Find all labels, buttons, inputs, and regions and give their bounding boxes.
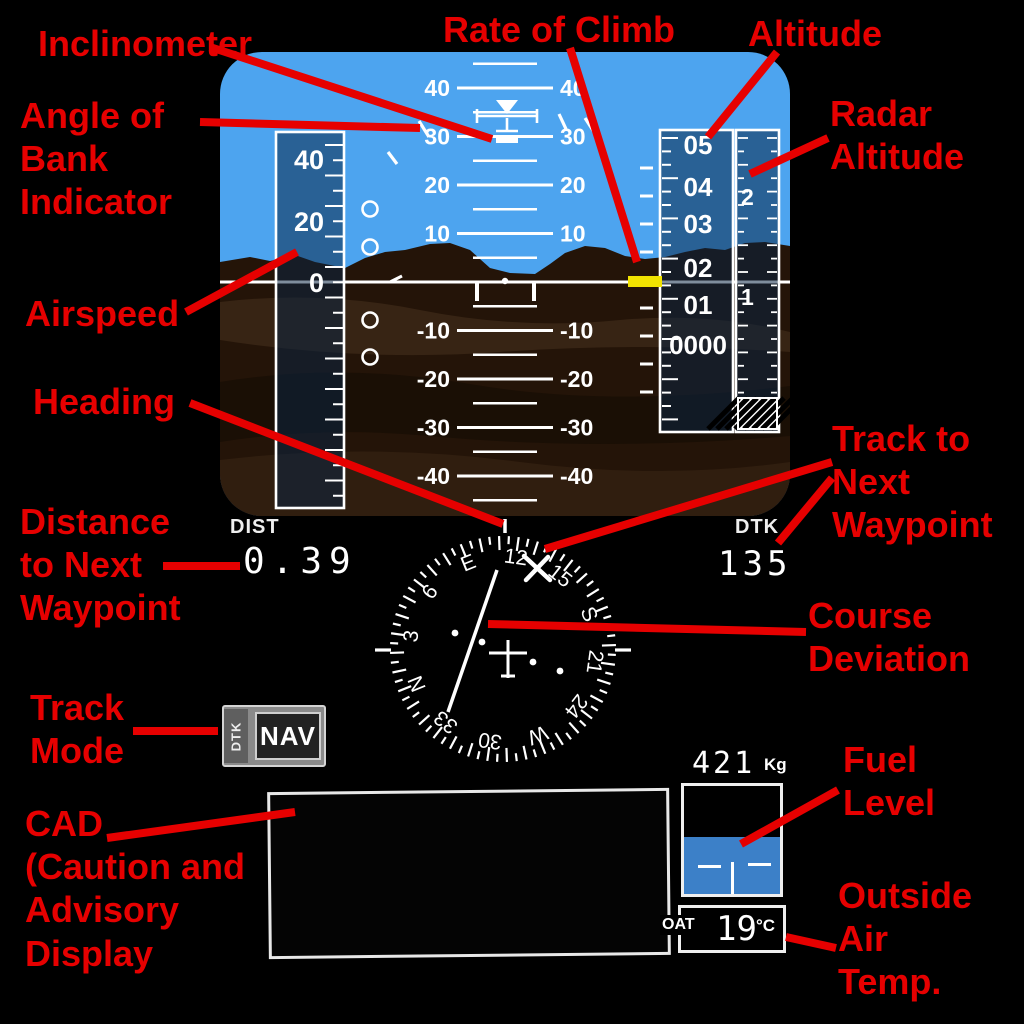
oat-unit: °C <box>756 916 775 936</box>
rose-tick <box>555 733 562 745</box>
rose-tick <box>435 559 440 565</box>
rose-tick <box>480 538 483 552</box>
waypoint-bearing-pointer-icon <box>524 556 550 580</box>
label-rate-of-climb: Rate of Climb <box>443 8 675 51</box>
rose-tick <box>600 690 607 693</box>
rose-tick <box>603 616 611 618</box>
pitch-label-left: -20 <box>417 366 450 392</box>
pitch-label-right: -40 <box>560 463 593 489</box>
label-track-to-next-waypoint: Track to Next Waypoint <box>832 417 993 547</box>
rose-tick <box>551 743 555 750</box>
rose-tick <box>605 673 613 675</box>
rose-label: 24 <box>559 690 592 723</box>
pitch-label-left: -40 <box>417 463 450 489</box>
label-heading: Heading <box>33 380 175 423</box>
rose-tick <box>441 737 445 744</box>
pitch-label-right: -20 <box>560 366 593 392</box>
hsi-compass: N36E1215S2124W3033 <box>360 505 650 795</box>
pitch-label-right: -30 <box>560 415 593 441</box>
airspeed-value: 40 <box>294 145 324 175</box>
rate-of-climb-pointer <box>628 276 662 287</box>
airspeed-tape: 40200 <box>276 132 344 508</box>
attitude-display: 4040303020201010-10-10-20-20-30-30-40-40 <box>220 52 790 516</box>
rose-tick <box>452 548 456 555</box>
dtk-value: 135 <box>718 544 791 584</box>
oat-label: OAT <box>660 915 697 935</box>
radalt-value: 2 <box>741 184 754 210</box>
caution-advisory-display <box>267 788 671 959</box>
hsi-aircraft-symbol <box>489 640 527 678</box>
pitch-label-left: -30 <box>417 415 450 441</box>
oat-value: 19 <box>716 909 757 949</box>
rose-tick <box>534 749 536 757</box>
rose-tick <box>443 553 450 565</box>
rose-tick <box>468 743 472 756</box>
rose-tick <box>534 542 538 555</box>
rose-tick <box>544 545 547 552</box>
rose-tick <box>419 715 429 724</box>
altitude-value: 01 <box>684 290 713 320</box>
rose-tick <box>560 554 564 561</box>
rose-label: E <box>458 550 480 577</box>
altitude-value: 04 <box>684 172 713 202</box>
rose-tick <box>427 565 436 575</box>
label-track-mode: Track Mode <box>30 686 124 772</box>
line-oat <box>786 937 836 948</box>
rose-label: W <box>524 720 551 749</box>
rose-tick <box>549 549 556 561</box>
rose-tick <box>393 624 401 626</box>
label-distance-to-next-waypoint: Distance to Next Waypoint <box>20 500 181 630</box>
fuel-gauge <box>681 783 783 897</box>
rose-tick <box>597 680 610 684</box>
rose-tick <box>569 723 578 733</box>
rose-tick <box>597 598 604 602</box>
rose-tick <box>459 746 462 753</box>
pfd-training-diagram: { "annotations": { "accent_color": "#e60… <box>0 0 1024 1024</box>
rose-tick <box>407 701 419 708</box>
rose-tick <box>590 695 602 702</box>
compass-rose-labels: N36E1215S2124W3033 <box>399 544 607 753</box>
rose-tick <box>524 746 527 760</box>
fuel-tick-left <box>698 865 721 868</box>
rose-tick <box>420 572 426 577</box>
airspeed-value: 20 <box>294 207 324 237</box>
label-fuel-level: Fuel Level <box>843 738 935 824</box>
pitch-label-left: 20 <box>424 172 450 198</box>
rose-tick <box>450 736 457 748</box>
pitch-label-left: -10 <box>417 318 450 344</box>
track-mode-value: NAV <box>255 712 321 760</box>
rose-label: 33 <box>430 706 463 739</box>
fuel-quantity-value: 421 <box>692 746 755 781</box>
rose-tick <box>395 680 403 682</box>
rose-tick <box>607 635 615 636</box>
rose-label: 6 <box>417 580 442 603</box>
rose-tick <box>470 541 472 549</box>
rose-tick <box>413 712 419 717</box>
label-radar-altitude: Radar Altitude <box>830 92 964 178</box>
fuel-tick-center <box>731 862 734 894</box>
altitude-value: 0000 <box>669 330 727 360</box>
track-mode-box: DTK NAV <box>222 705 326 767</box>
rose-tick <box>566 733 571 739</box>
rose-tick <box>575 566 580 572</box>
fuel-quantity-unit: Kg <box>764 755 787 775</box>
rose-tick <box>587 589 599 596</box>
label-altitude: Altitude <box>748 12 882 55</box>
airspeed-value: 0 <box>309 268 324 298</box>
compass-rose-ticks <box>390 536 616 762</box>
rose-tick <box>391 662 399 663</box>
rose-tick <box>478 751 480 759</box>
altitude-value: 02 <box>684 253 713 283</box>
label-inclinometer: Inclinometer <box>38 22 252 65</box>
dtk-label: DTK <box>735 516 779 539</box>
label-airspeed: Airspeed <box>25 292 179 335</box>
course-deviation-indicator <box>448 570 497 712</box>
rose-tick <box>527 539 529 547</box>
rose-label: N <box>404 672 431 695</box>
dist-value: 0.39 <box>243 541 358 582</box>
pitch-label-left: 40 <box>424 75 450 101</box>
rose-tick <box>402 697 409 701</box>
rose-tick <box>489 537 490 545</box>
label-angle-of-bank: Angle of Bank Indicator <box>20 94 172 224</box>
label-outside-air-temp: Outside Air Temp. <box>838 874 972 1004</box>
pitch-label-right: -10 <box>560 318 593 344</box>
pitch-label-right: 20 <box>560 172 586 198</box>
rose-tick <box>392 670 406 673</box>
rose-tick <box>580 721 586 726</box>
rose-tick <box>516 753 517 761</box>
rose-tick <box>399 605 406 608</box>
rose-label: S <box>575 604 602 626</box>
dist-label: DIST <box>230 516 280 539</box>
pitch-label-right: 40 <box>560 75 586 101</box>
rose-label: 21 <box>582 649 608 675</box>
rose-tick <box>426 726 431 732</box>
rose-tick <box>396 614 409 618</box>
rose-tick <box>591 706 598 710</box>
rose-tick <box>587 581 593 586</box>
rose-tick <box>403 596 415 603</box>
rose-tick <box>577 573 587 582</box>
rose-tick <box>408 587 415 591</box>
rose-tick <box>600 626 614 629</box>
label-course-deviation: Course Deviation <box>808 594 970 680</box>
altitude-value: 05 <box>684 130 713 160</box>
altitude-value: 03 <box>684 209 713 239</box>
rose-label: 30 <box>477 728 503 754</box>
track-mode-prefix: DTK <box>224 709 248 763</box>
slip-indicator <box>496 136 518 143</box>
altitude-tape: 05040302010000 <box>660 130 733 432</box>
label-cad: CAD (Caution and Advisory Display <box>25 802 245 975</box>
pitch-label-right: 10 <box>560 221 586 247</box>
fuel-tick-right <box>748 863 771 866</box>
radalt-value: 1 <box>741 284 754 310</box>
pitch-label-left: 10 <box>424 221 450 247</box>
rose-label: 3 <box>399 629 423 644</box>
